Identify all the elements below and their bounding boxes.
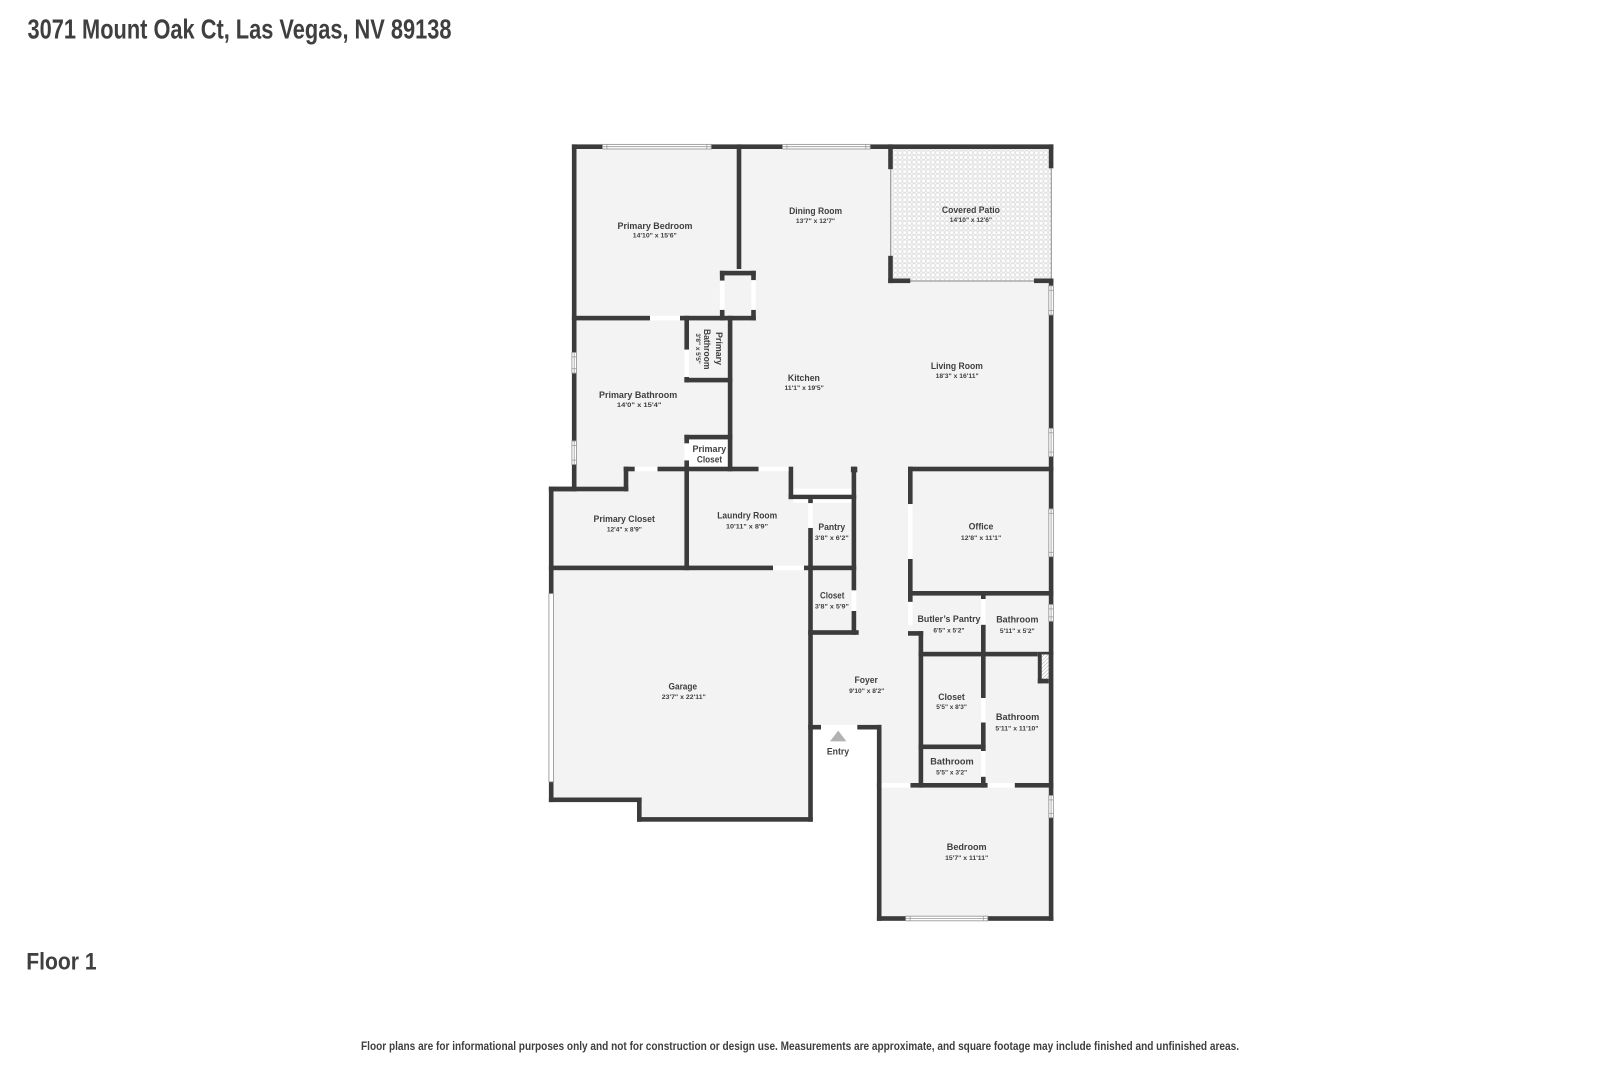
svg-text:6'5" x 5'2": 6'5" x 5'2": [933, 627, 964, 634]
svg-text:15'7" x 11'11": 15'7" x 11'11": [945, 855, 988, 862]
svg-text:5'5" x 3'2": 5'5" x 3'2": [936, 769, 967, 776]
svg-text:Living Room: Living Room: [931, 361, 983, 371]
svg-text:14'0" x 15'4": 14'0" x 15'4": [617, 402, 662, 409]
svg-text:11'1" x 19'5": 11'1" x 19'5": [785, 385, 824, 392]
svg-text:14'10" x 15'6": 14'10" x 15'6": [633, 233, 677, 240]
svg-text:Primary: Primary: [714, 332, 724, 365]
svg-text:3'8" x 5'9": 3'8" x 5'9": [815, 604, 849, 611]
svg-text:9'10" x 8'2": 9'10" x 8'2": [849, 688, 884, 695]
svg-text:Entry: Entry: [827, 746, 849, 756]
svg-text:Closet: Closet: [938, 692, 965, 702]
svg-text:3'8" x 5'5": 3'8" x 5'5": [694, 333, 701, 364]
svg-text:Office: Office: [969, 522, 994, 532]
svg-text:Primary Bathroom: Primary Bathroom: [599, 390, 677, 400]
svg-text:Primary Closet: Primary Closet: [594, 514, 655, 524]
svg-text:Foyer: Foyer: [855, 675, 879, 685]
svg-text:5'11" x 5'2": 5'11" x 5'2": [1000, 628, 1035, 635]
svg-text:Bedroom: Bedroom: [947, 842, 987, 852]
svg-text:14'10" x 12'6": 14'10" x 12'6": [950, 217, 992, 224]
svg-text:10'11" x 8'9": 10'11" x 8'9": [726, 524, 768, 531]
svg-text:Closet: Closet: [697, 455, 722, 465]
svg-text:Kitchen: Kitchen: [788, 373, 820, 383]
svg-text:Butler’s Pantry: Butler’s Pantry: [918, 614, 981, 624]
svg-text:Laundry Room: Laundry Room: [717, 511, 777, 521]
svg-text:12'4" x 8'9": 12'4" x 8'9": [607, 527, 642, 534]
svg-text:3'8" x 6'2": 3'8" x 6'2": [815, 535, 849, 542]
svg-text:18'3" x 16'11": 18'3" x 16'11": [936, 373, 979, 380]
svg-text:5'11" x 11'10": 5'11" x 11'10": [995, 725, 1038, 732]
svg-text:Bathroom: Bathroom: [996, 712, 1039, 722]
svg-text:3071 Mount Oak Ct, Las Vegas,: 3071 Mount Oak Ct, Las Vegas, NV 89138: [28, 13, 452, 44]
svg-text:12'8" x 11'1": 12'8" x 11'1": [961, 535, 1001, 542]
svg-text:13'7" x 12'7": 13'7" x 12'7": [796, 218, 835, 225]
svg-text:Pantry: Pantry: [818, 522, 845, 532]
svg-text:Closet: Closet: [820, 591, 844, 601]
svg-text:Primary Bedroom: Primary Bedroom: [618, 221, 693, 231]
svg-text:Floor plans are for informatio: Floor plans are for informational purpos…: [361, 1039, 1239, 1053]
svg-text:Covered Patio: Covered Patio: [942, 205, 1000, 215]
svg-text:23'7" x 22'11": 23'7" x 22'11": [662, 694, 706, 701]
svg-text:Bathroom: Bathroom: [996, 615, 1038, 625]
svg-text:Primary: Primary: [693, 444, 727, 454]
svg-text:Bathroom: Bathroom: [702, 329, 712, 370]
svg-text:5'5" x 8'3": 5'5" x 8'3": [936, 704, 967, 711]
svg-text:Floor 1: Floor 1: [26, 948, 96, 975]
svg-text:Dining Room: Dining Room: [789, 206, 842, 216]
svg-text:Garage: Garage: [669, 681, 698, 691]
svg-text:Bathroom: Bathroom: [930, 756, 973, 766]
